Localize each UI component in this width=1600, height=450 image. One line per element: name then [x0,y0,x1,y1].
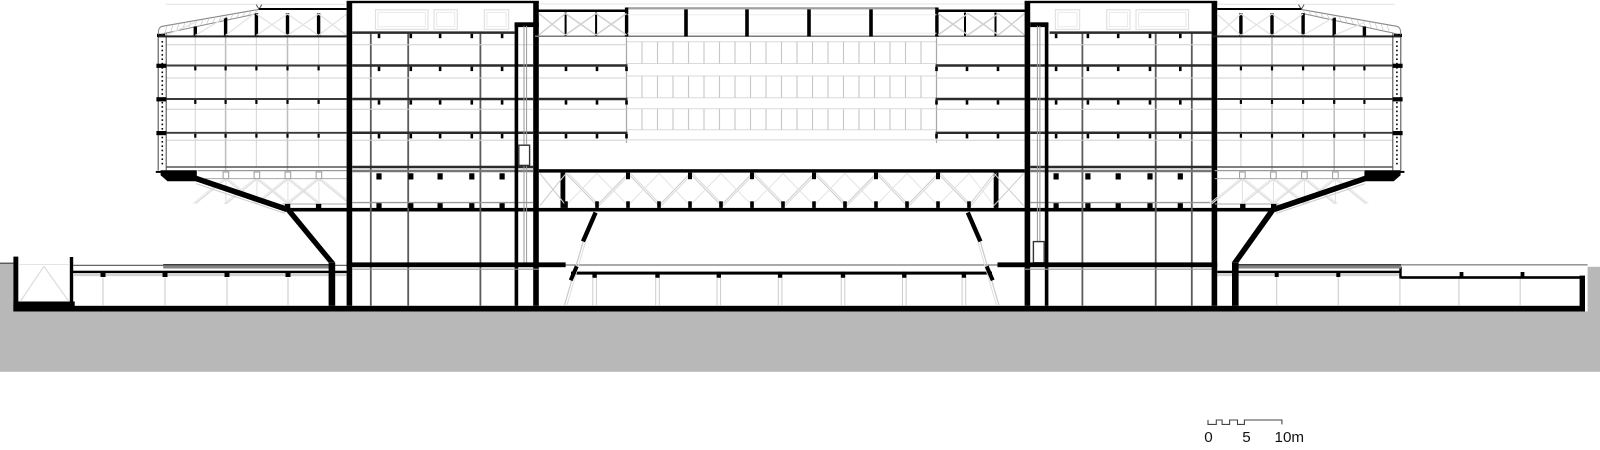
svg-text:10m: 10m [1275,429,1305,446]
svg-text:0: 0 [1204,429,1212,446]
svg-text:5: 5 [1242,429,1250,446]
